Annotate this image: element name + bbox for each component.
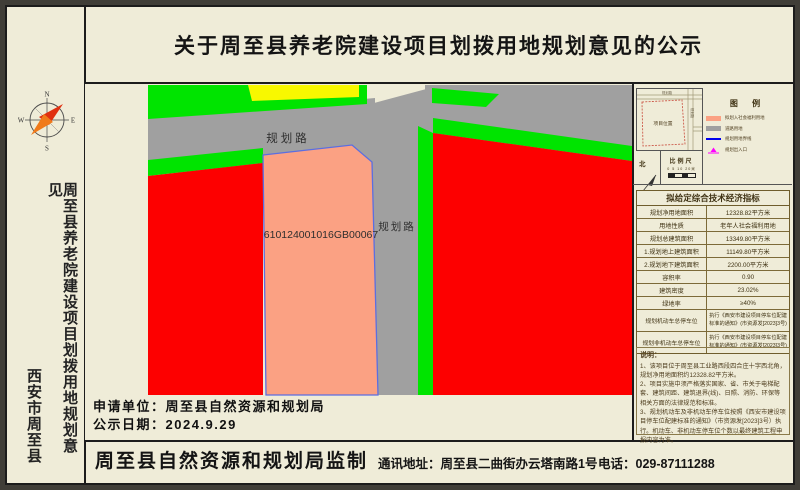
table-row: 用地性质 老年人社会福利用地 <box>637 219 789 232</box>
scale-label: 比例尺 <box>661 156 702 165</box>
row-label: 规划净用地面积 <box>637 206 707 218</box>
panel-divider-line <box>632 84 634 442</box>
green-belt-right-side <box>418 126 433 395</box>
north-arrow-shaft <box>643 175 656 191</box>
compass-s-label: S <box>45 145 49 153</box>
notice-page: 关于周至县养老院建设项目划拨用地规划意见的公示 N S W E 周至县养老院建设… <box>0 0 800 490</box>
notes-title: 说明： <box>640 351 786 362</box>
planning-map: 610124001016GB00067 规划路 规划路 <box>85 84 632 440</box>
row-value: 执行《西安市建设项目停车位配建标准的通知》(市资源发[2023]3号) <box>707 310 789 331</box>
compass-rose: N S W E <box>18 90 76 152</box>
compass-e-label: E <box>71 117 75 125</box>
entrance-triangle <box>711 147 717 152</box>
footer-producer: 周至县自然资源和规划局监制 <box>95 446 368 473</box>
legend-item: 规划用地界线 <box>706 136 790 142</box>
parcel-code-label: 610124001016GB00067 <box>264 229 379 241</box>
note-line: 2、项目实施中须严格落实国家、省、市关于电梯配套、建筑间距、建筑退界(线)、日照… <box>640 380 786 408</box>
notes-block: 说明： 1、该项目位于周至县工业路西段四合庄十字西北角，规划净用地面积约1232… <box>636 347 790 435</box>
red-zone-east <box>433 133 632 395</box>
entrance-bar <box>708 152 719 153</box>
row-value: 13349.80平方米 <box>707 232 789 244</box>
panel-section-line <box>633 184 792 185</box>
legend-item-label: 规划出入口 <box>725 147 747 153</box>
road-label-top: 规划路 <box>266 131 310 145</box>
legend-item: 拟划入社会福利用地 <box>706 115 790 121</box>
row-value: 0.90 <box>707 271 789 283</box>
applicant-line: 申请单位：周至县自然资源和规划局 <box>93 398 325 416</box>
row-label: 用地性质 <box>637 219 707 231</box>
row-value: 11149.80平方米 <box>707 245 789 257</box>
table-row: 规划机动车总停车位 执行《西安市建设项目停车位配建标准的通知》(市资源发[202… <box>637 310 789 332</box>
row-label: 建筑密度 <box>637 284 707 296</box>
note-line: 1、该项目位于周至县工业路西段四合庄十字西北角，规划净用地面积约12328.82… <box>640 362 786 381</box>
row-value: 2200.00平方米 <box>707 258 789 270</box>
scale-bar <box>668 173 696 178</box>
location-inset-map: 项目位置 规划路 规划路 <box>637 89 702 150</box>
north-box: 北 <box>636 151 661 184</box>
compass-n-label: N <box>44 91 49 99</box>
indicators-title: 拟给定综合技术经济指标 <box>637 191 789 206</box>
row-value: 老年人社会福利用地 <box>707 219 789 231</box>
row-value: ≥40% <box>707 297 789 309</box>
legend-item-label: 拟划入社会福利用地 <box>725 115 765 121</box>
legend-item-label: 道路用地 <box>725 126 743 132</box>
sidebar-project-title-vertical: 周至县养老院建设项目划拨用地规划意见 <box>47 182 77 468</box>
footer-phone: 电话：029-87111288 <box>598 453 715 472</box>
table-row: 1.规划地上建筑面积 11149.80平方米 <box>637 245 789 258</box>
north-label: 北 <box>639 161 646 168</box>
table-row: 2.规划地下建筑面积 2200.00平方米 <box>637 258 789 271</box>
scale-box: 比例尺 0 5 10 20米 <box>661 151 703 184</box>
project-parcel <box>263 145 378 395</box>
note-line: 3、规划机动车及非机动车停车位按照《西安市建设项目停车位配建标准的通知》（市资源… <box>640 408 786 445</box>
row-value: 12328.82平方米 <box>707 206 789 218</box>
inset-road-label-right: 规划路 <box>690 108 695 119</box>
row-label: 规划总建筑面积 <box>637 232 707 244</box>
scale-bar-segment <box>688 174 695 177</box>
application-info: 申请单位：周至县自然资源和规划局 公示日期：2024.9.29 <box>93 398 325 434</box>
legend-road-swatch <box>706 126 721 131</box>
inset-roads <box>637 89 702 150</box>
legend-parcel-swatch <box>706 116 721 121</box>
row-label: 绿地率 <box>637 297 707 309</box>
legend-item-label: 规划用地界线 <box>725 136 751 142</box>
legend-entrance-icon <box>706 147 721 154</box>
row-label: 2.规划地下建筑面积 <box>637 258 707 270</box>
row-label: 容积率 <box>637 271 707 283</box>
indicators-table: 拟给定综合技术经济指标 规划净用地面积 12328.82平方米 用地性质 老年人… <box>636 190 790 354</box>
row-label: 规划机动车总停车位 <box>637 310 707 331</box>
table-row: 容积率 0.90 <box>637 271 789 284</box>
row-value: 23.02% <box>707 284 789 296</box>
location-inset-box: 项目位置 规划路 规划路 <box>636 88 703 151</box>
sidebar-city-vertical: 西安市周至县 <box>26 368 41 468</box>
legend-title: 图 例 <box>706 98 790 109</box>
table-row: 建筑密度 23.02% <box>637 284 789 297</box>
inset-road-label-top: 规划路 <box>662 90 673 95</box>
table-row: 规划净用地面积 12328.82平方米 <box>637 206 789 219</box>
table-row: 规划总建筑面积 13349.80平方米 <box>637 232 789 245</box>
compass-w-label: W <box>18 117 25 125</box>
row-label: 1.规划地上建筑面积 <box>637 245 707 257</box>
page-title: 关于周至县养老院建设项目划拨用地规划意见的公示 <box>174 30 703 60</box>
inset-project-label: 项目位置 <box>653 120 672 127</box>
title-bar: 关于周至县养老院建设项目划拨用地规划意见的公示 <box>85 8 792 82</box>
legend-item: 规划出入口 <box>706 147 790 154</box>
table-row: 绿地率 ≥40% <box>637 297 789 310</box>
publish-date-line: 公示日期：2024.9.29 <box>93 416 325 434</box>
red-zone-west <box>148 163 263 395</box>
legend-item: 道路用地 <box>706 126 790 132</box>
footer-address: 通讯地址：周至县二曲街办云塔南路1号 <box>378 453 597 472</box>
legend: 图 例 拟划入社会福利用地 道路用地 规划用地界线 规划出入口 <box>706 98 790 154</box>
legend-boundary-line-swatch <box>706 138 721 140</box>
road-label-right: 规划路 <box>378 220 416 233</box>
scale-ticks: 0 5 10 20米 <box>661 167 702 172</box>
